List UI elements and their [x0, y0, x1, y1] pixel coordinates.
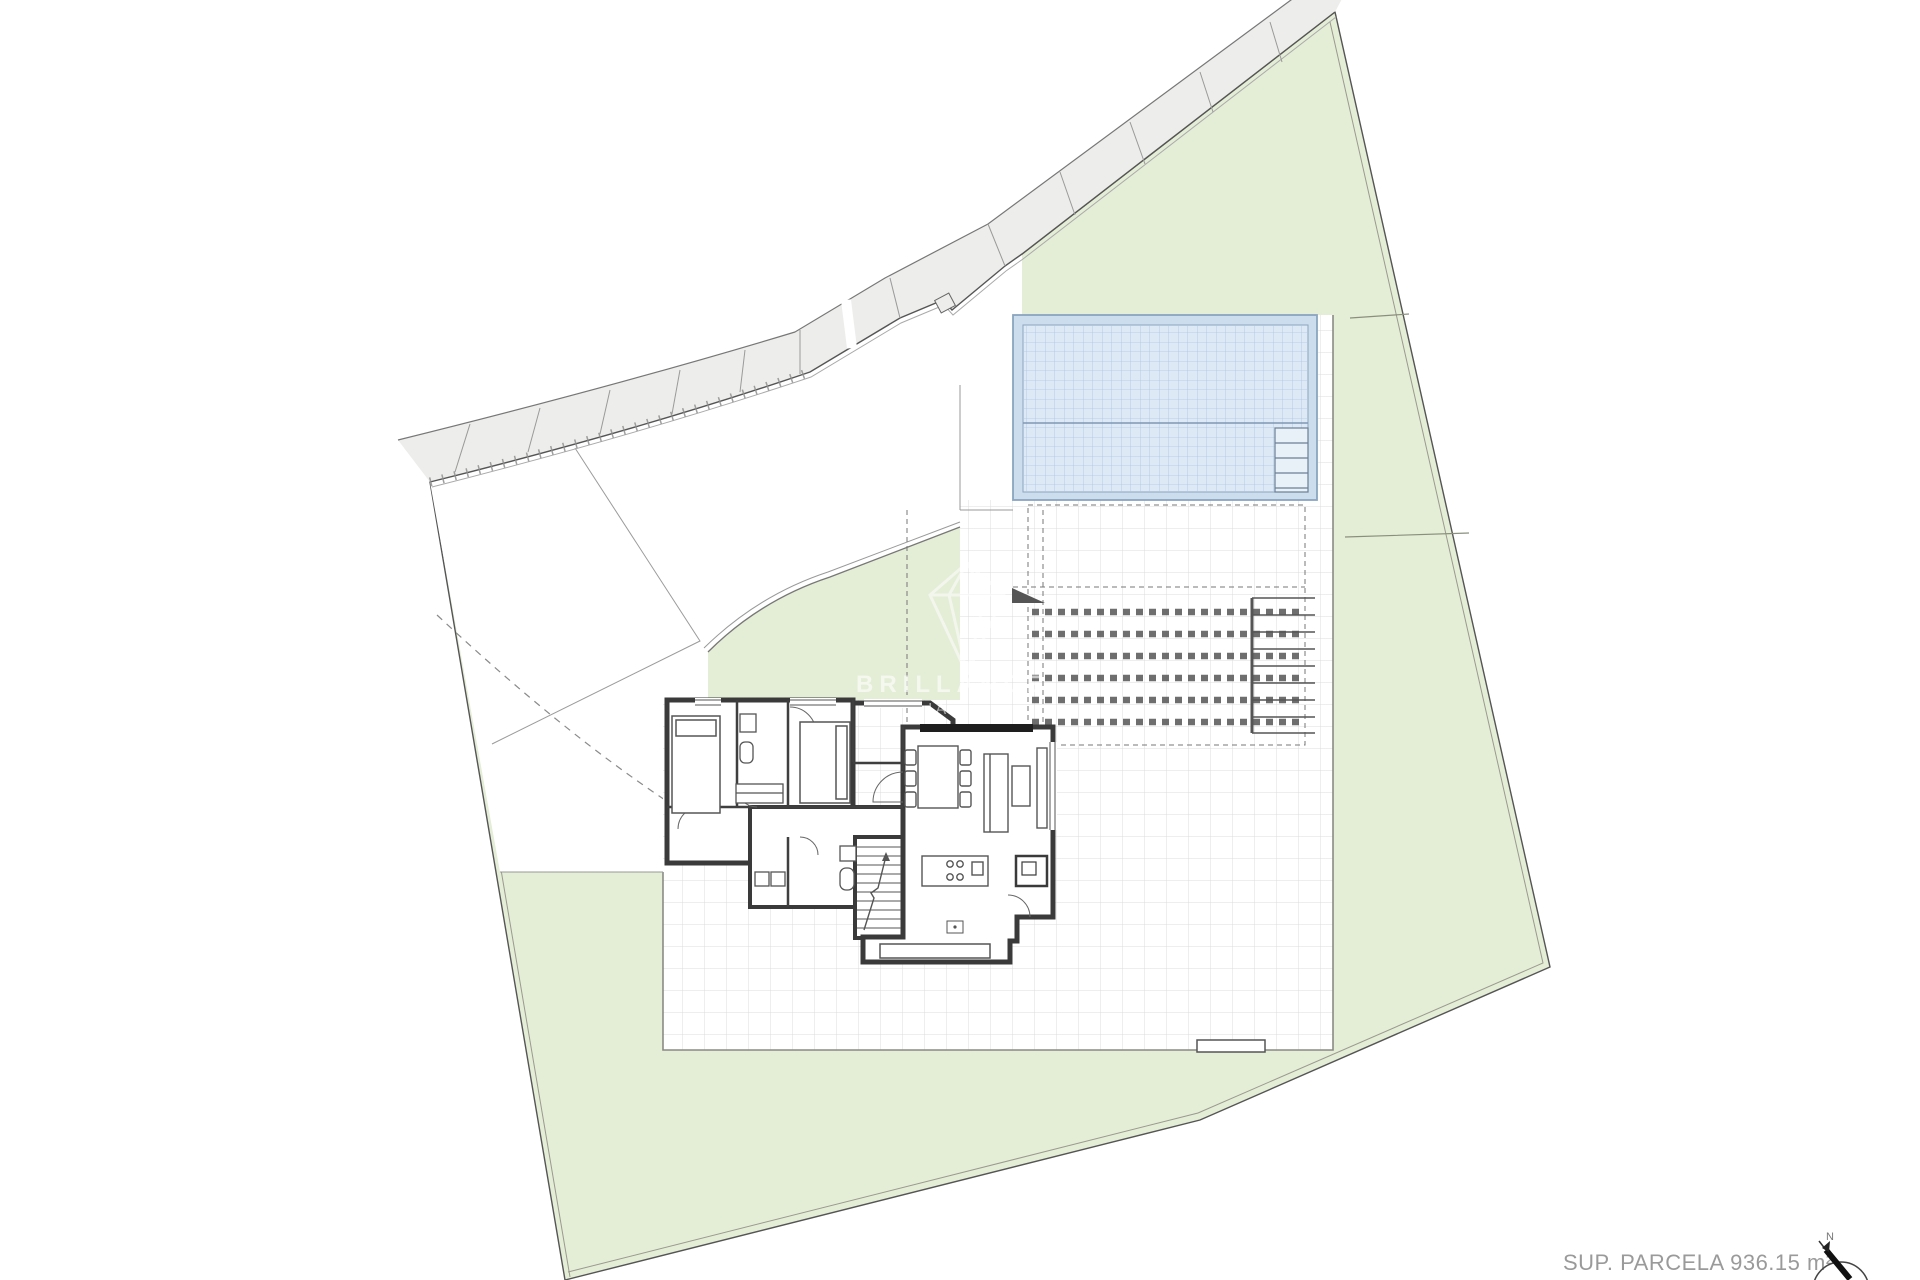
hob-burner-icon: [947, 861, 953, 867]
hob-burner-icon: [957, 861, 963, 867]
washer-icon: [755, 872, 769, 886]
window-living-east: [1048, 742, 1057, 830]
site-plan-drawing: BRILLANCE IA SUP. PARCELA 936.15 m² N: [0, 0, 1920, 1280]
sink-icon: [840, 846, 856, 861]
sink-icon: [740, 714, 756, 732]
floor-label-box: [947, 921, 963, 933]
swimming-pool: [1013, 315, 1317, 500]
bed-1: [672, 716, 720, 813]
entrance-porch: [880, 944, 990, 958]
sofa: [984, 754, 1008, 832]
dining-table: [905, 746, 971, 808]
coffee-table: [1012, 766, 1030, 806]
pool-steps: [1275, 428, 1308, 492]
window-living-south: [920, 724, 1033, 732]
stairwell: [855, 837, 903, 938]
watermark-line2: IA: [928, 701, 949, 718]
watermark-line1: BRILLANCE: [856, 671, 1049, 698]
counter-sink-icon: [1022, 862, 1036, 875]
terrace-step: [1197, 1040, 1265, 1052]
window-bed2: [790, 698, 836, 707]
sidewalk-gate-gap: [846, 300, 852, 348]
tv-unit: [1037, 748, 1047, 828]
pool-water-grid: [1023, 325, 1308, 492]
hob-burner-icon: [947, 874, 953, 880]
toilet-icon: [740, 742, 753, 763]
window-bed1: [695, 698, 721, 707]
kitchen-island: [922, 856, 988, 886]
dryer-icon: [771, 872, 785, 886]
island-sink-icon: [972, 862, 983, 875]
bed-2: [800, 722, 850, 803]
hob-burner-icon: [957, 874, 963, 880]
toilet-icon: [840, 868, 854, 890]
north-label: N: [1826, 1231, 1834, 1243]
site-plan-page: BRILLANCE IA SUP. PARCELA 936.15 m² N: [0, 0, 1920, 1280]
parcel-area-label: SUP. PARCELA 936.15 m²: [1563, 1250, 1834, 1275]
kitchen-counter: [1016, 856, 1047, 886]
window-entry: [864, 699, 922, 708]
